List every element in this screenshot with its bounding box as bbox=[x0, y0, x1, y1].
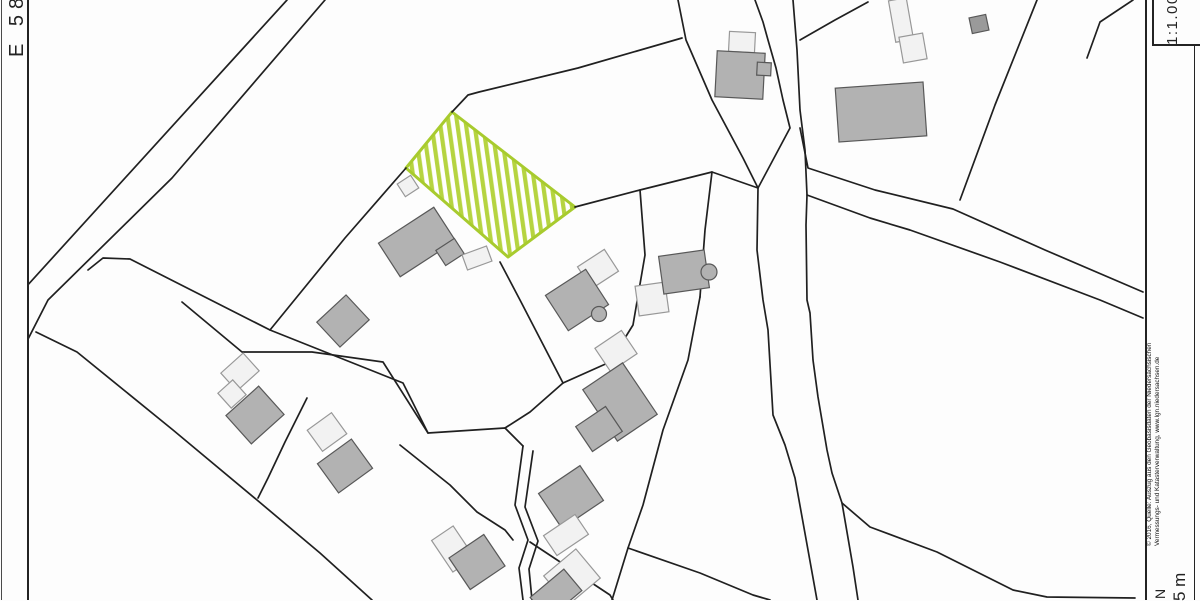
parcel-boundary bbox=[807, 195, 1143, 318]
attribution-line-1: © 2016, Quelle: Auszug aus den Geobasisd… bbox=[1146, 328, 1154, 546]
parcel-boundary bbox=[1087, 0, 1133, 58]
building bbox=[317, 295, 369, 347]
map-canvas bbox=[0, 0, 1200, 600]
easting-coordinate-label: E 58 bbox=[6, 0, 29, 57]
frame-left-outer-line bbox=[1, 0, 2, 600]
attribution-line-2: Vermessungs- und Katasterverwaltung, www… bbox=[1154, 328, 1162, 546]
building bbox=[757, 62, 772, 76]
parcel-boundary bbox=[25, 0, 287, 288]
parcel-boundary bbox=[525, 451, 538, 600]
frame-right-outer-line bbox=[1194, 0, 1195, 600]
building bbox=[378, 207, 455, 276]
scalebar-label: 5 m bbox=[1170, 573, 1190, 601]
parcel-boundary bbox=[515, 446, 528, 600]
parcel-boundary bbox=[800, 2, 868, 40]
title-fragment-label: N bbox=[1152, 589, 1168, 599]
parcel-boundary bbox=[505, 383, 563, 428]
outbuilding bbox=[397, 175, 419, 196]
outbuilding bbox=[544, 514, 589, 555]
building bbox=[835, 82, 927, 142]
parcel-boundary bbox=[400, 445, 513, 540]
frame-left-inner-line bbox=[27, 0, 29, 600]
outbuilding bbox=[307, 413, 347, 452]
outbuilding bbox=[899, 33, 927, 63]
parcel-boundary bbox=[575, 172, 758, 207]
parcel-boundary bbox=[25, 0, 325, 345]
outbuilding bbox=[728, 31, 755, 52]
building bbox=[969, 14, 989, 33]
parcel-boundary bbox=[500, 262, 563, 383]
parcel-boundary bbox=[800, 128, 1143, 292]
building-annex bbox=[701, 264, 717, 280]
parcel-boundary bbox=[628, 548, 770, 600]
attribution-text: © 2016, Quelle: Auszug aus den Geobasisd… bbox=[1146, 328, 1162, 546]
parcel-boundary bbox=[842, 503, 1135, 598]
parcel-boundary bbox=[452, 38, 682, 112]
map-scale-label: 1:1.000 bbox=[1164, 0, 1181, 45]
parcel-boundary bbox=[182, 302, 428, 433]
cadastral-map-page: { "frame": { "easting_label": "E 58", "s… bbox=[0, 0, 1200, 600]
outbuilding bbox=[462, 246, 492, 270]
building-annex bbox=[592, 307, 607, 322]
